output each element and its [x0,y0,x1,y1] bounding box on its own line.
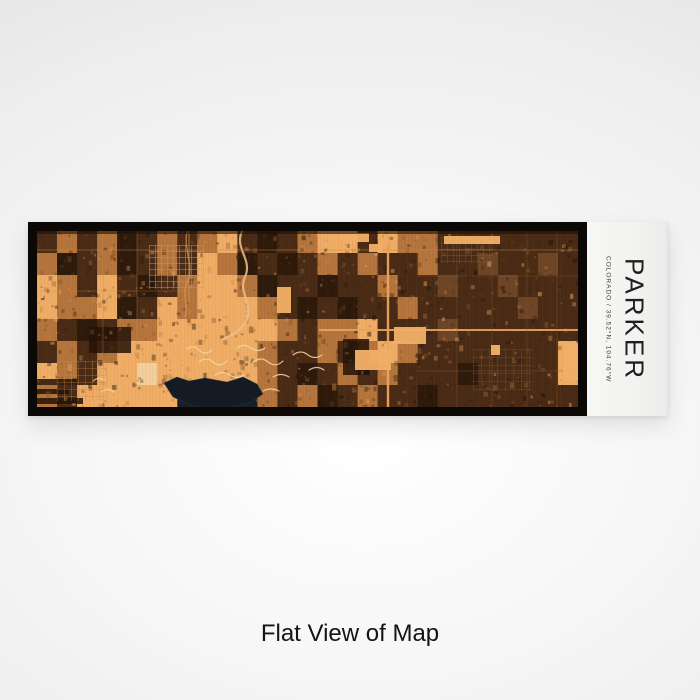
map-title: PARKER [619,258,650,381]
caption: Flat View of Map [0,620,700,648]
map-subtitle: COLORADO / 39.52°N, 104.76°W [605,256,612,382]
map-print-product: COLORADO / 39.52°N, 104.76°W PARKER [28,222,668,416]
map-satellite-art [37,231,578,407]
framed-map [28,222,587,416]
map-label-panel: COLORADO / 39.52°N, 104.76°W PARKER [587,222,668,416]
